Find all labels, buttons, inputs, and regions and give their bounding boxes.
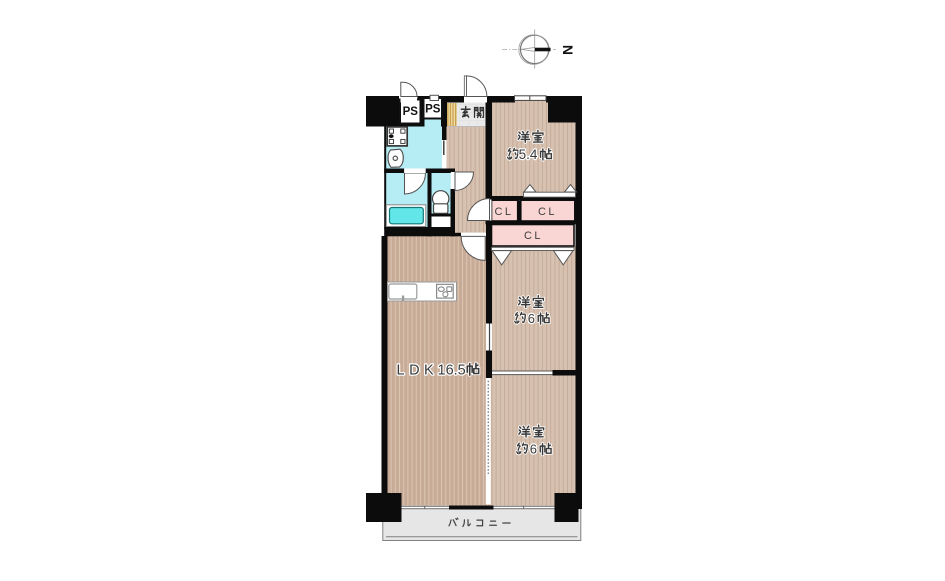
- svg-text:CL: CL: [538, 206, 557, 218]
- svg-text:16.5: 16.5: [438, 363, 466, 379]
- svg-text:6: 6: [528, 311, 535, 326]
- svg-text:PS: PS: [425, 103, 441, 115]
- svg-text:N: N: [560, 45, 576, 55]
- svg-text:6: 6: [530, 442, 537, 457]
- svg-text:LDK: LDK: [397, 363, 439, 379]
- svg-text:5.4: 5.4: [519, 147, 538, 162]
- svg-text:CL: CL: [494, 206, 513, 218]
- svg-text:PS: PS: [403, 106, 419, 118]
- svg-text:CL: CL: [524, 230, 543, 242]
